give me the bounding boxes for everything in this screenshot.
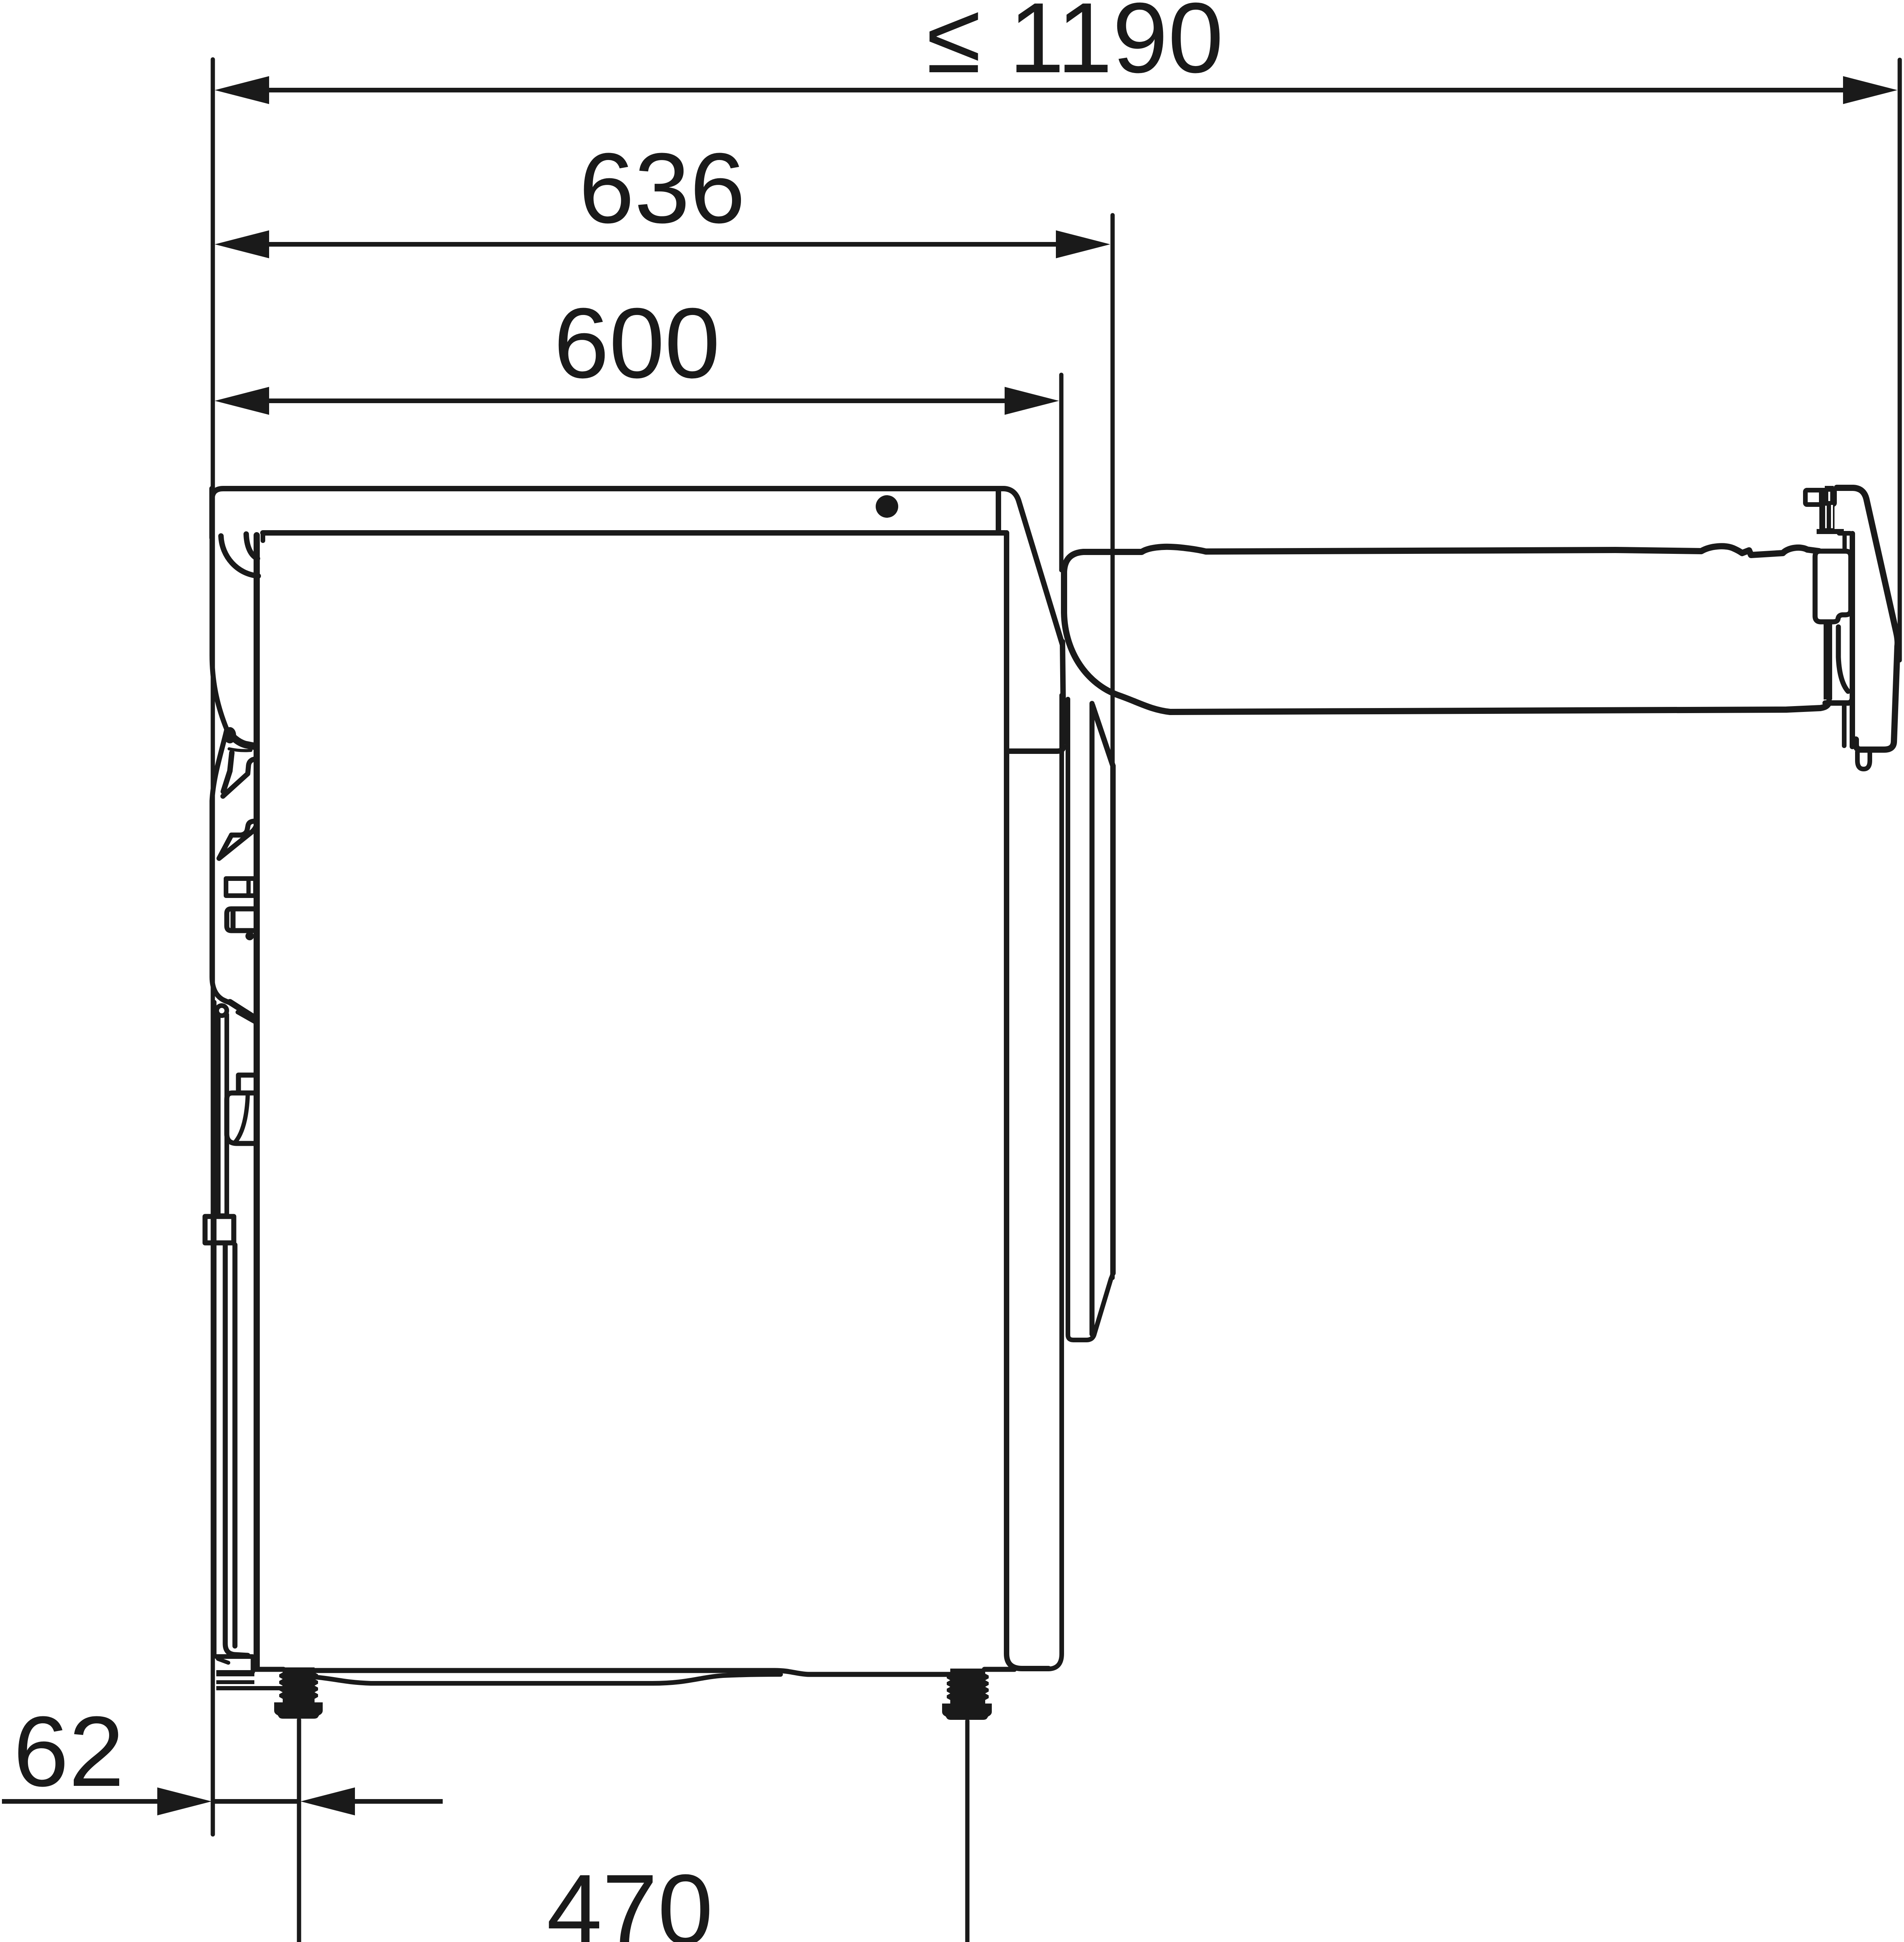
svg-text:62: 62 — [13, 1696, 124, 1807]
svg-text:≤ 1190: ≤ 1190 — [926, 0, 1223, 94]
svg-text:636: 636 — [579, 132, 746, 244]
svg-text:470: 470 — [547, 1854, 713, 1942]
svg-text:600: 600 — [554, 287, 720, 399]
